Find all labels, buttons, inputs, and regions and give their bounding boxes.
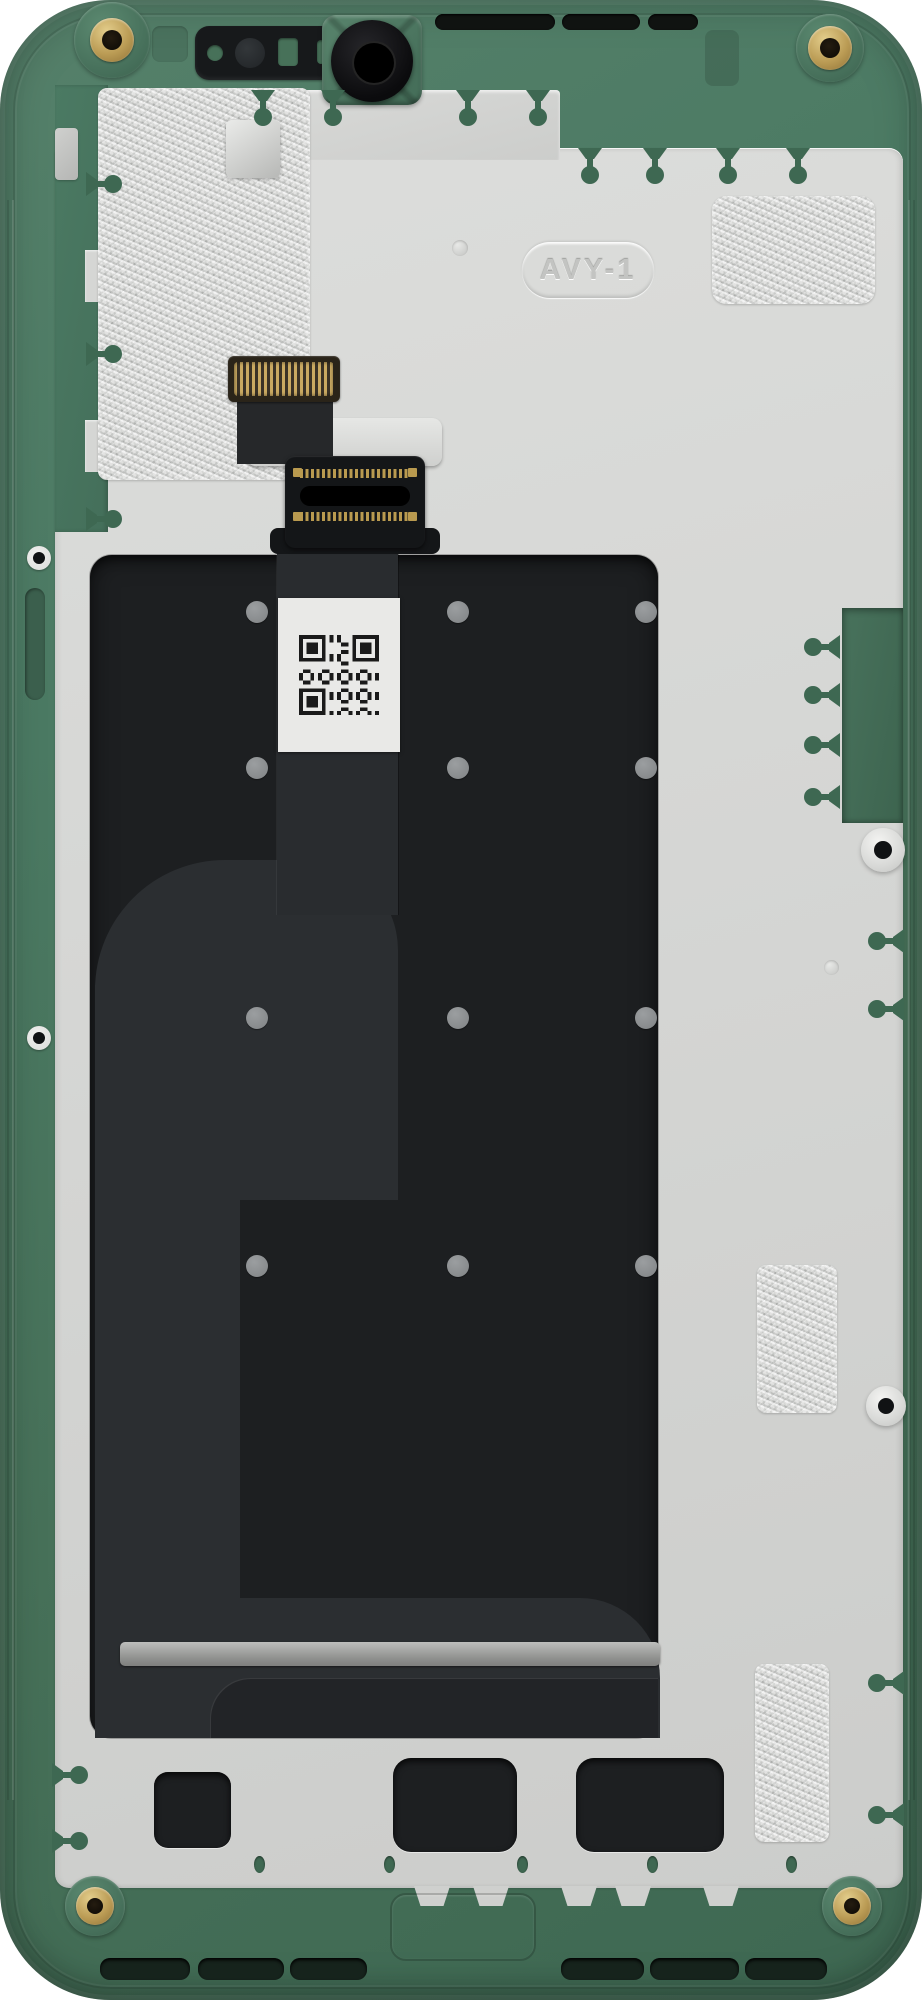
pin-cap: [293, 512, 302, 521]
keyhole-cutout: [642, 148, 668, 186]
rail-screw-hole: [33, 1032, 45, 1044]
gold-pin-strip: [234, 362, 334, 396]
keyhole-cutout: [577, 148, 603, 186]
camera-lens-ring: [352, 41, 396, 85]
earpiece-opening: [278, 38, 298, 66]
plate-oval-hole: [786, 1856, 797, 1873]
adhesive-dot: [447, 1255, 469, 1277]
bottom-frame-slot: [198, 1958, 284, 1980]
keyhole-cutout: [86, 341, 124, 367]
right-rail-highlight: [908, 200, 910, 1800]
antenna-slot-top: [435, 14, 555, 30]
keyhole-cutout: [455, 90, 481, 128]
plate-cutout-right: [576, 1758, 724, 1852]
bottom-frame-slot: [561, 1958, 644, 1980]
bottom-frame-slot: [650, 1958, 739, 1980]
bottom-frame-slot: [745, 1958, 827, 1980]
plate-oval-hole: [517, 1856, 528, 1873]
screw-hole: [878, 1398, 894, 1414]
keyhole-cutout: [52, 1828, 90, 1854]
foil-patch-right-mid: [757, 1265, 837, 1413]
bottom-speaker-box: [390, 1893, 536, 1961]
keyhole-cutout: [86, 171, 124, 197]
connector-slot: [300, 486, 410, 506]
plate-oval-hole: [647, 1856, 658, 1873]
plate-cutout-mid: [393, 1758, 517, 1852]
foil-patch-right-bottom: [755, 1664, 829, 1842]
pin-row-top: [300, 469, 410, 478]
frame-notch-square: [152, 26, 188, 62]
keyhole-cutout: [802, 784, 840, 810]
qr-code: [299, 635, 379, 715]
antenna-slot-top: [562, 14, 640, 30]
adhesive-dot: [246, 601, 268, 623]
keyhole-cutout: [866, 1670, 904, 1696]
screw-center: [87, 1898, 103, 1914]
flex-cable-neck: [237, 398, 333, 464]
keyhole-cutout: [866, 1802, 904, 1828]
marking-text: AVY-1: [540, 254, 637, 287]
keyhole-cutout: [866, 996, 904, 1022]
bottom-frame-slot: [100, 1958, 190, 1980]
product-photo-canvas: AVY-1: [0, 0, 922, 2000]
adhesive-dot: [635, 1255, 657, 1277]
adhesive-dot: [246, 757, 268, 779]
antenna-slot-top: [648, 14, 698, 30]
qr-label: [278, 598, 400, 752]
pin-row-bottom: [300, 512, 410, 521]
adhesive-dot: [447, 601, 469, 623]
adhesive-dot: [447, 757, 469, 779]
graphite-sheet-edge: [210, 1678, 658, 1738]
sensor-hole: [207, 45, 223, 61]
keyhole-cutout: [866, 928, 904, 954]
screw-center: [820, 38, 840, 58]
frame-step: [705, 30, 739, 86]
keyhole-cutout: [52, 1762, 90, 1788]
screw-center: [844, 1898, 860, 1914]
bottom-frame-slot: [290, 1958, 367, 1980]
frame-window-right: [842, 608, 903, 823]
marking-badge: AVY-1: [522, 242, 654, 298]
foil-patch-top-right: [712, 196, 875, 304]
keyhole-cutout: [715, 148, 741, 186]
adhesive-dot: [635, 1007, 657, 1029]
plate-dimple: [824, 960, 839, 975]
keyhole-cutout: [86, 506, 124, 532]
metal-shield-square: [226, 120, 280, 178]
plate-dimple: [452, 240, 468, 256]
plate-oval-hole: [254, 1856, 265, 1873]
right-rail-ridge: [913, 200, 915, 1800]
flex-cable-left-band: [95, 985, 240, 1645]
rail-screw-hole: [33, 552, 45, 564]
adhesive-dot: [246, 1007, 268, 1029]
left-rail-ridge: [7, 200, 9, 1800]
screw-center: [102, 30, 122, 50]
keyhole-cutout: [802, 682, 840, 708]
graphite-metal-strip: [120, 1642, 660, 1666]
b2b-connector-housing: [285, 456, 425, 548]
pin-cap: [408, 512, 417, 521]
screw-hole: [874, 841, 892, 859]
side-button-recess: [25, 588, 45, 700]
plate-oval-hole: [384, 1856, 395, 1873]
pin-cap: [408, 468, 417, 477]
keyhole-cutout: [320, 90, 346, 128]
keyhole-cutout: [802, 634, 840, 660]
adhesive-dot: [447, 1007, 469, 1029]
keyhole-cutout: [802, 732, 840, 758]
plate-cutout-small: [154, 1772, 231, 1848]
board-connector-gold: [228, 356, 340, 402]
adhesive-dot: [246, 1255, 268, 1277]
proximity-sensor: [235, 38, 265, 68]
keyhole-cutout: [525, 90, 551, 128]
keyhole-cutout: [250, 90, 276, 128]
adhesive-dot: [635, 757, 657, 779]
left-edge-metal-tab: [55, 128, 78, 180]
keyhole-cutout: [785, 148, 811, 186]
pin-cap: [293, 468, 302, 477]
adhesive-dot: [635, 601, 657, 623]
left-rail-highlight: [12, 200, 14, 1800]
